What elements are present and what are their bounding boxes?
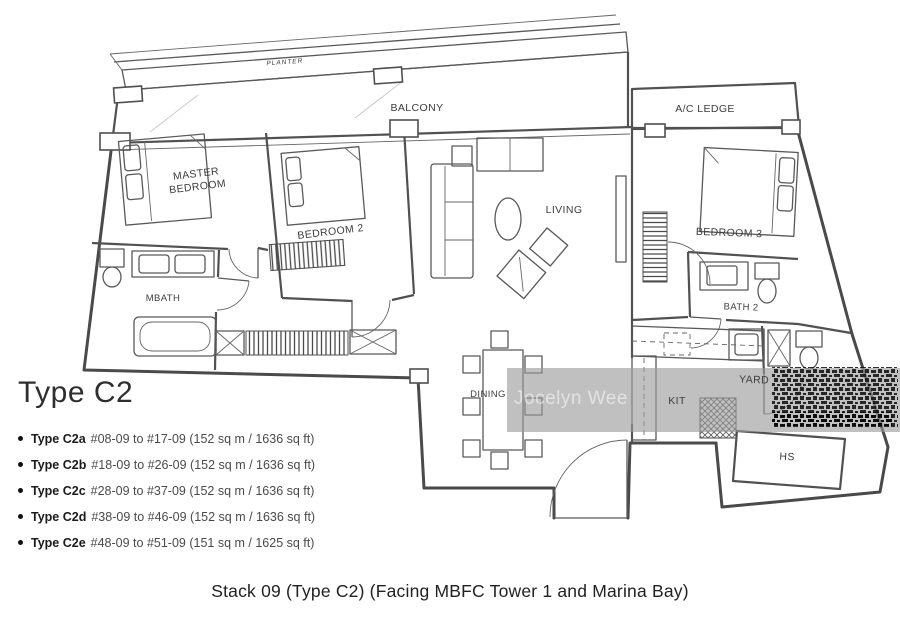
room-label-yard: YARD (739, 373, 769, 386)
bedroom2-wardrobe (269, 239, 345, 270)
room-label-bath2: BATH 2 (723, 301, 758, 313)
yard-fixtures (768, 330, 822, 369)
legend: Type C2 Type C2a#08-09 to #17-09 (152 sq… (18, 376, 438, 562)
bedroom3-bed (700, 148, 798, 237)
redacted-stamp (772, 367, 898, 428)
room-label-planter: PLANTER (266, 58, 303, 68)
list-item: Type C2b#18-09 to #26-09 (152 sq m / 163… (18, 458, 438, 472)
bedroom3-wardrobe (643, 212, 667, 282)
bullet-icon (18, 488, 23, 493)
bullet-icon (18, 436, 23, 441)
bullet-icon (18, 514, 23, 519)
bedroom2-bed (281, 147, 365, 226)
list-item: Type C2d#38-09 to #46-09 (152 sq m / 163… (18, 510, 438, 524)
bath2-fixtures (700, 262, 779, 303)
bullet-icon (18, 462, 23, 467)
living-furniture (431, 138, 568, 299)
corridor-wardrobe (216, 330, 396, 355)
room-label-balcony: BALCONY (391, 102, 444, 114)
room-label-ac-ledge: A/C LEDGE (675, 103, 735, 115)
watermark-name: Jocelyn Wee (514, 388, 628, 409)
room-label-kitchen: KIT (668, 395, 686, 407)
list-item: Type C2c#28-09 to #37-09 (152 sq m / 163… (18, 484, 438, 498)
list-item: Type C2e#48-09 to #51-09 (151 sq m / 162… (18, 536, 438, 550)
stack-caption: Stack 09 (Type C2) (Facing MBFC Tower 1 … (0, 581, 900, 602)
room-label-living: LIVING (546, 204, 583, 216)
unit-list: Type C2a#08-09 to #17-09 (152 sq m / 163… (18, 432, 438, 550)
floor-plan-page: PLANTER BALCONY A/C LEDGE MASTER BEDROOM… (0, 0, 900, 620)
room-label-bedroom3: BEDROOM 3 (696, 226, 763, 240)
bullet-icon (18, 540, 23, 545)
room-label-hs: HS (779, 451, 795, 464)
tv-feature-wall (616, 176, 626, 262)
room-label-bedroom2: BEDROOM 2 (297, 222, 365, 242)
list-item: Type C2a#08-09 to #17-09 (152 sq m / 163… (18, 432, 438, 446)
plan-type-title: Type C2 (18, 376, 438, 410)
room-label-mbath: MBATH (146, 293, 181, 304)
planter-strip (110, 15, 628, 90)
room-label-dining: DINING (470, 389, 506, 400)
